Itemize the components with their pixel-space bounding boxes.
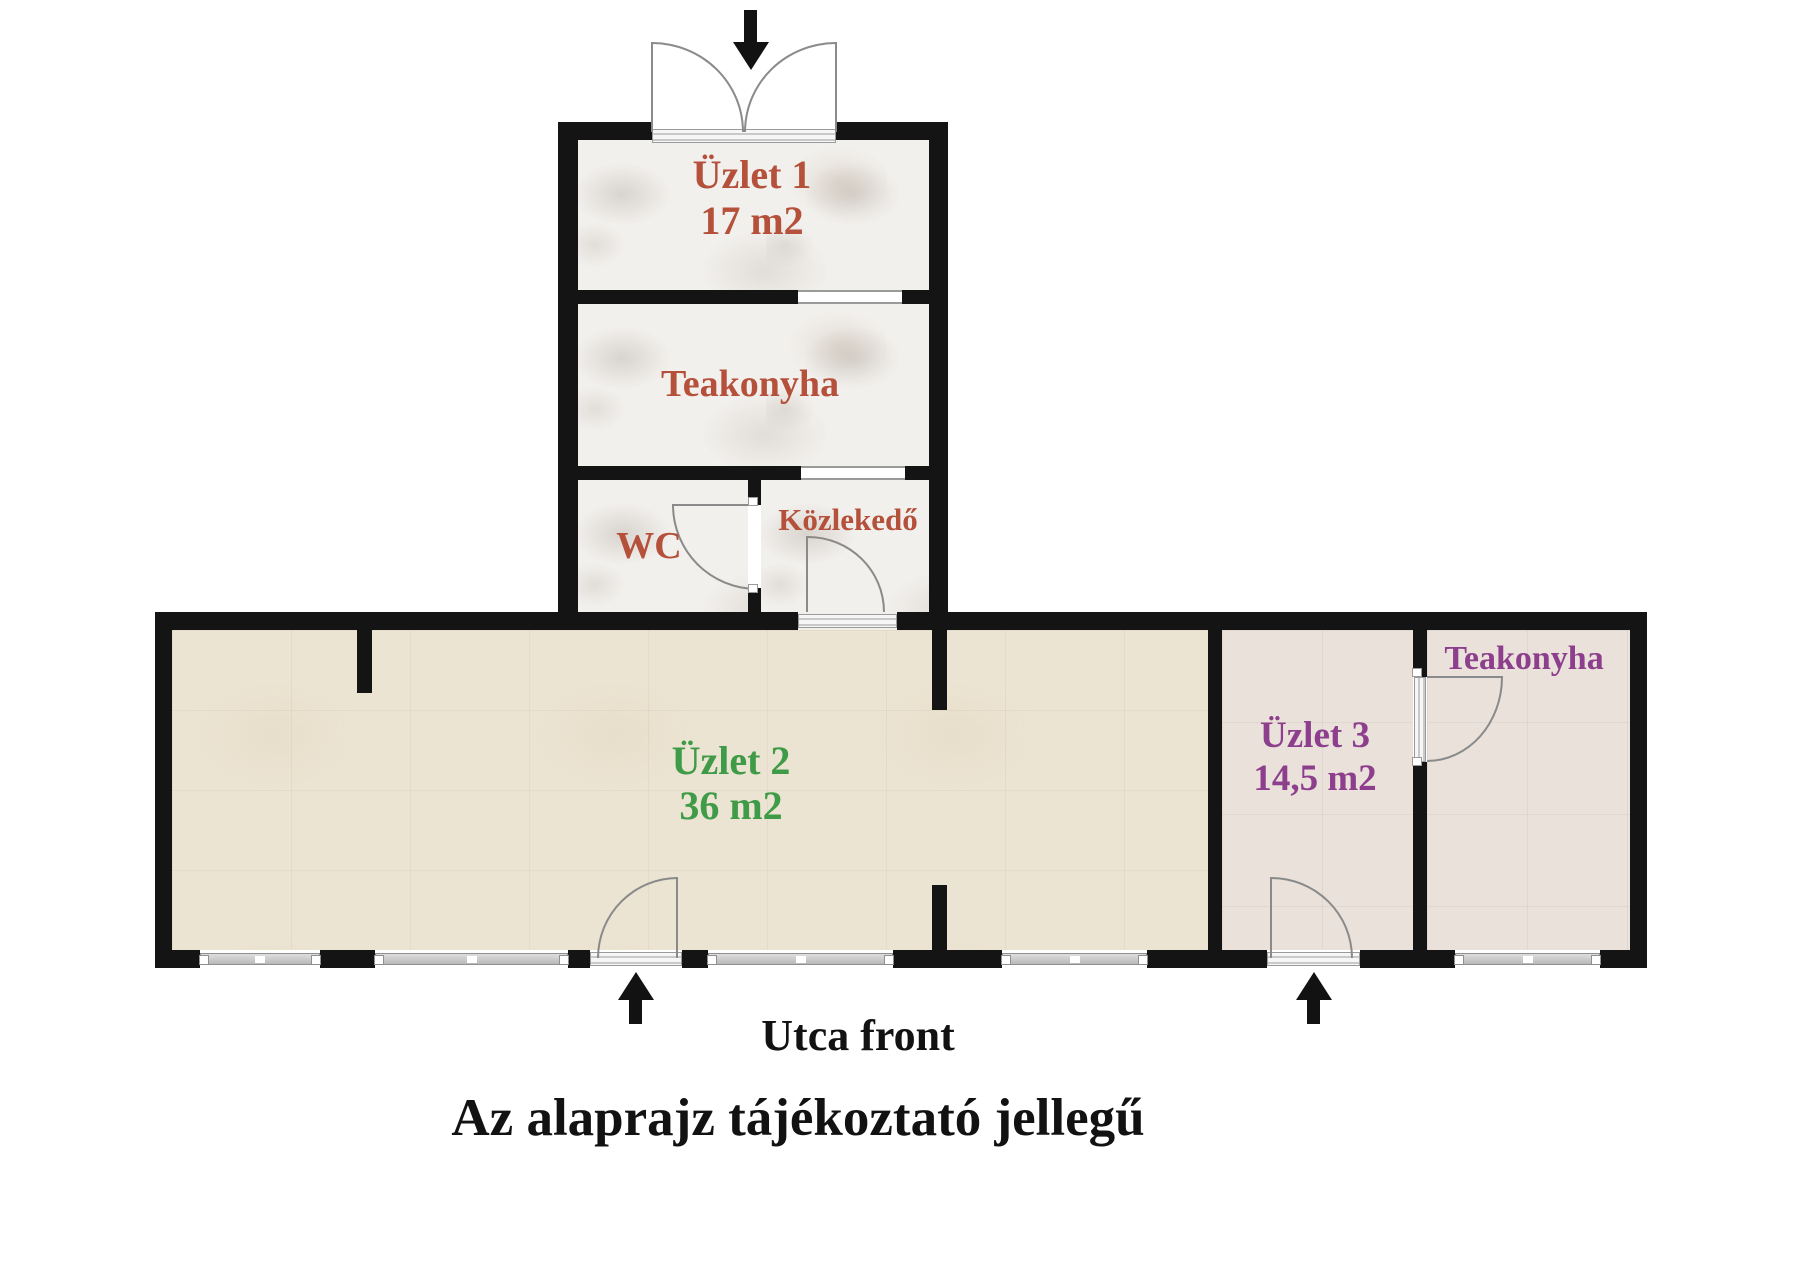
wall (558, 122, 652, 140)
room-name: Üzlet 3 (1253, 714, 1376, 757)
room-name: Üzlet 2 (672, 738, 791, 783)
room-label-teakonyha-uzlet3: Teakonyha (1444, 640, 1603, 678)
entrance-arrow-down-icon (744, 10, 757, 44)
interior-opening (798, 290, 902, 304)
room-name: Üzlet 1 (693, 152, 812, 198)
disclaimer-label: Az alaprajz tájékoztató jellegű (451, 1088, 1144, 1148)
entrance-arrow-down-icon (733, 42, 769, 70)
door-hinge (1412, 757, 1422, 766)
door-leaf (806, 536, 808, 612)
door-hinge (748, 497, 758, 506)
door-sill (798, 614, 897, 628)
wall (155, 950, 200, 968)
room-label-uzlet2: Üzlet 2 36 m2 (672, 738, 791, 828)
wall (1147, 950, 1267, 968)
wall (1208, 630, 1222, 950)
wall-stub (932, 630, 947, 710)
wall (902, 290, 930, 304)
wall (929, 122, 948, 630)
door-leaf (1270, 877, 1272, 958)
room-area: 17 m2 (693, 198, 812, 244)
room-label-uzlet3: Üzlet 3 14,5 m2 (1253, 714, 1376, 800)
room-label-uzlet1: Üzlet 1 17 m2 (693, 152, 812, 244)
wall (155, 612, 798, 630)
wall (893, 950, 1002, 968)
door-hinge (748, 584, 758, 593)
room-label-wc: WC (616, 524, 681, 568)
wall (682, 950, 708, 968)
window (708, 953, 893, 965)
door-leaf (672, 504, 758, 506)
wall (1600, 950, 1647, 968)
window (375, 953, 568, 965)
wall (568, 950, 590, 968)
room-label-teakonyha-top: Teakonyha (661, 362, 839, 406)
wall-stub (932, 885, 947, 950)
wall (155, 612, 172, 968)
room-name: Teakonyha (661, 362, 839, 406)
wall (576, 290, 798, 304)
door-sill (1414, 677, 1426, 762)
door-swing-arc (652, 42, 744, 132)
wall (836, 122, 948, 140)
room-name: Teakonyha (1444, 640, 1603, 678)
wall (558, 122, 578, 630)
interior-opening (801, 466, 905, 480)
wall (905, 466, 930, 480)
room-name: WC (616, 524, 681, 568)
entrance-arrow-up-icon (1307, 998, 1320, 1024)
wall (1360, 950, 1455, 968)
room-label-kozlekedo: Közlekedő (778, 502, 918, 538)
window (200, 953, 320, 965)
window (1455, 953, 1600, 965)
room-name: Közlekedő (778, 502, 918, 538)
entrance-arrow-up-icon (629, 998, 642, 1024)
door-hinge (1412, 668, 1422, 677)
street-front-label: Utca front (761, 1010, 954, 1061)
wall (1413, 762, 1427, 950)
wall (1630, 612, 1647, 968)
entrance-arrow-up-icon (1296, 972, 1332, 1000)
window (1002, 953, 1147, 965)
floor-plan: Üzlet 1 17 m2 Teakonyha WC Közlekedő Üzl… (0, 0, 1809, 1280)
wall-stub (357, 630, 372, 693)
entrance-arrow-up-icon (618, 972, 654, 1000)
wall (320, 950, 375, 968)
room-area: 36 m2 (672, 783, 791, 828)
door-leaf (676, 877, 678, 958)
room-area: 14,5 m2 (1253, 757, 1376, 800)
wall (576, 466, 801, 480)
wall (897, 612, 1647, 630)
